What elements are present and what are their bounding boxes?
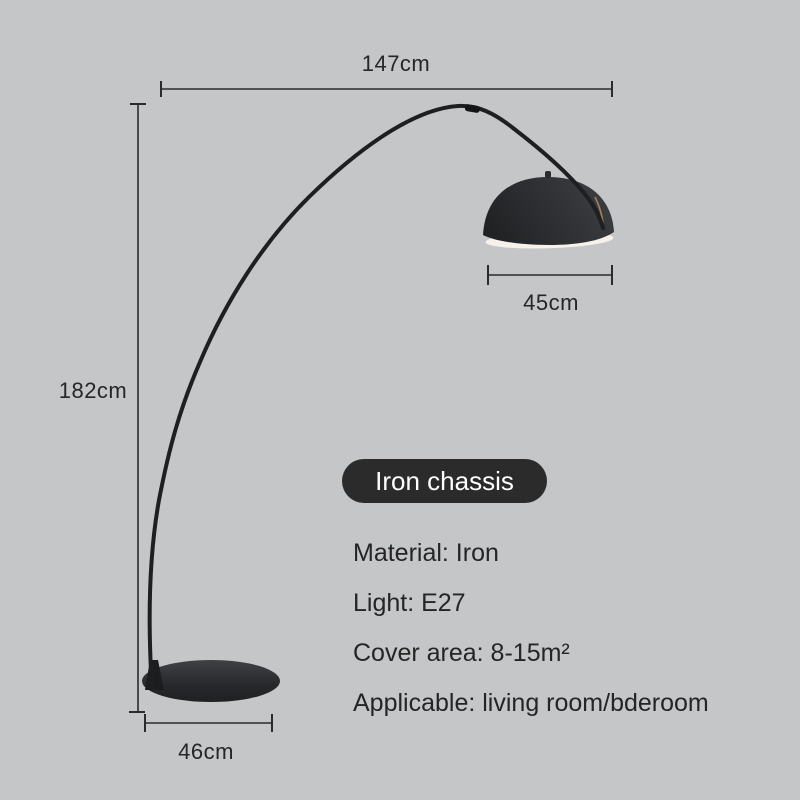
dimension-line-total-width — [161, 81, 612, 97]
material-badge: Iron chassis — [342, 459, 547, 503]
dimension-line-shade-width — [488, 265, 612, 285]
dimension-line-total-height — [129, 104, 146, 712]
spec-light: Light: E27 — [353, 589, 466, 617]
spec-cover-area: Cover area: 8-15m² — [353, 639, 570, 667]
shade-width-label: 45cm — [491, 289, 611, 317]
lamp-base — [142, 660, 280, 702]
arc-joint — [464, 104, 480, 113]
product-dimension-image: 147cm 182cm 45cm 46cm Iron chassis Mater… — [0, 0, 800, 800]
total-width-label: 147cm — [316, 50, 476, 78]
dimension-line-base-width — [145, 714, 272, 732]
lamp-finial — [545, 171, 551, 178]
spec-material: Material: Iron — [353, 539, 499, 567]
base-width-label: 46cm — [146, 738, 266, 766]
total-height-label: 182cm — [53, 377, 133, 405]
spec-applicable: Applicable: living room/bderoom — [353, 689, 709, 717]
